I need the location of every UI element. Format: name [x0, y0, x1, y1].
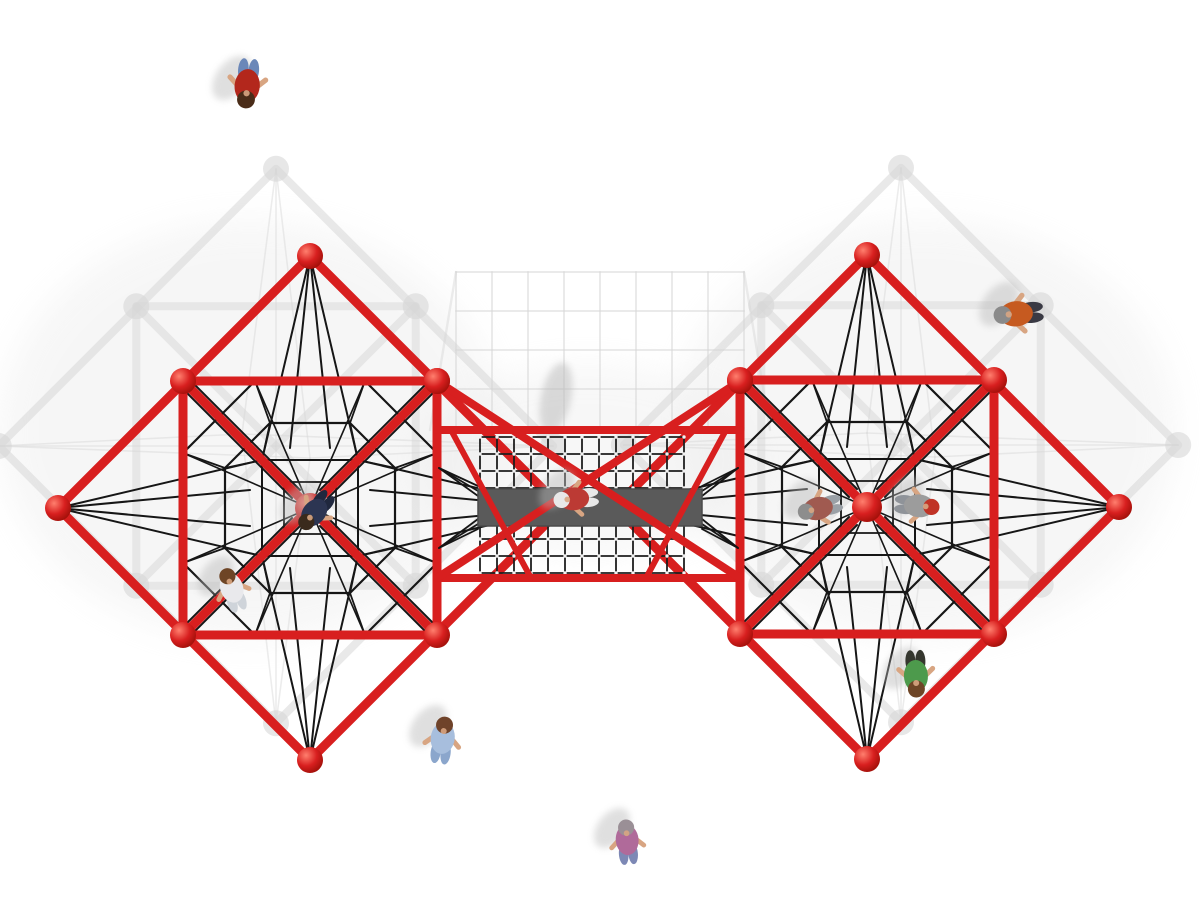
render-stage [0, 0, 1200, 900]
playground-render [0, 0, 1200, 900]
